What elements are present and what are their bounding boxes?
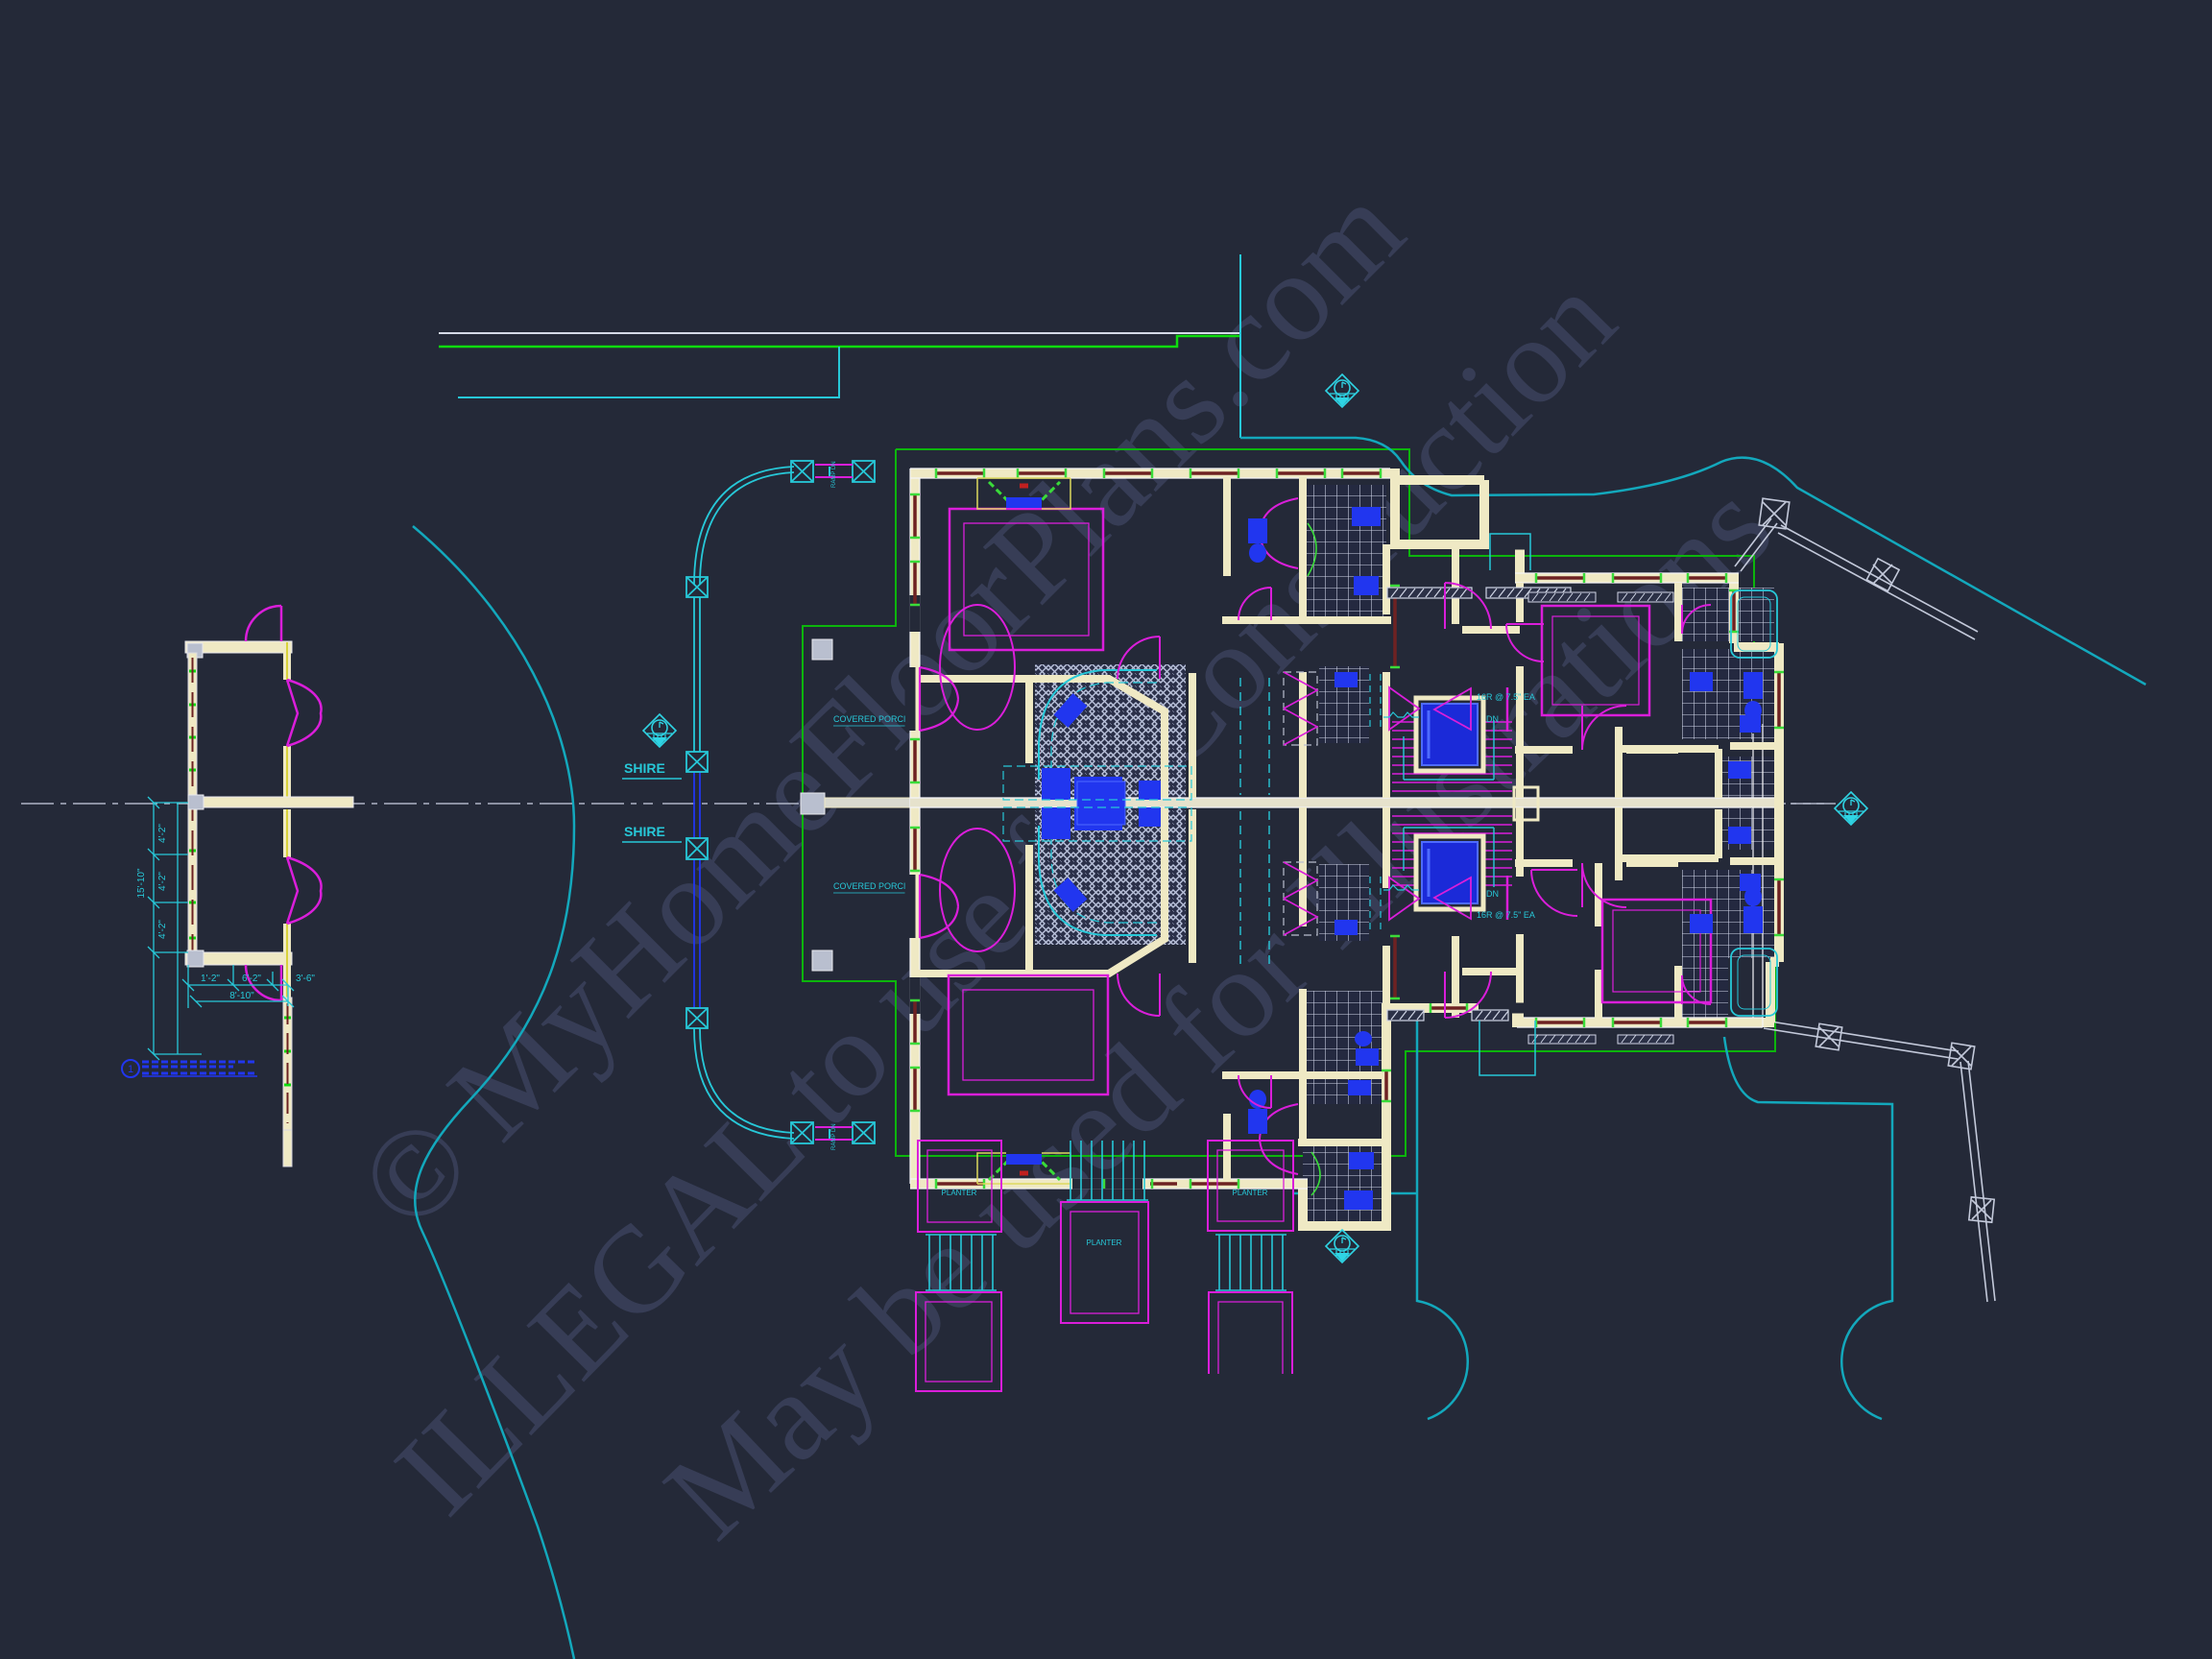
svg-text:1'-2": 1'-2" (201, 974, 220, 984)
svg-text:4'-2": 4'-2" (157, 824, 168, 843)
svg-text:RAMP DN: RAMP DN (831, 1123, 837, 1150)
svg-text:PLANTER: PLANTER (942, 1189, 977, 1197)
svg-text:16R @ 7.5" EA: 16R @ 7.5" EA (1477, 692, 1535, 702)
svg-text:SHIRE: SHIRE (624, 824, 665, 839)
svg-text:4'-2": 4'-2" (157, 872, 168, 891)
svg-text:15'-10": 15'-10" (136, 868, 147, 898)
svg-text:PLANTER: PLANTER (1087, 1238, 1122, 1247)
svg-text:3'-6": 3'-6" (296, 974, 315, 984)
svg-text:8'-10": 8'-10" (229, 991, 254, 1001)
svg-text:16R @ 7.5" EA: 16R @ 7.5" EA (1477, 910, 1535, 920)
svg-text:DN: DN (1486, 714, 1499, 724)
svg-text:6'-2": 6'-2" (242, 974, 261, 984)
svg-text:DN: DN (1486, 889, 1499, 899)
svg-text:1: 1 (128, 1064, 133, 1075)
svg-text:COVERED PORCH: COVERED PORCH (833, 714, 910, 724)
svg-text:RAMP DN: RAMP DN (831, 461, 837, 488)
svg-text:4'-2": 4'-2" (157, 920, 168, 939)
svg-text:COVERED PORCH: COVERED PORCH (833, 881, 910, 891)
svg-text:PLANTER: PLANTER (1233, 1189, 1268, 1197)
svg-text:SHIRE: SHIRE (624, 760, 665, 776)
